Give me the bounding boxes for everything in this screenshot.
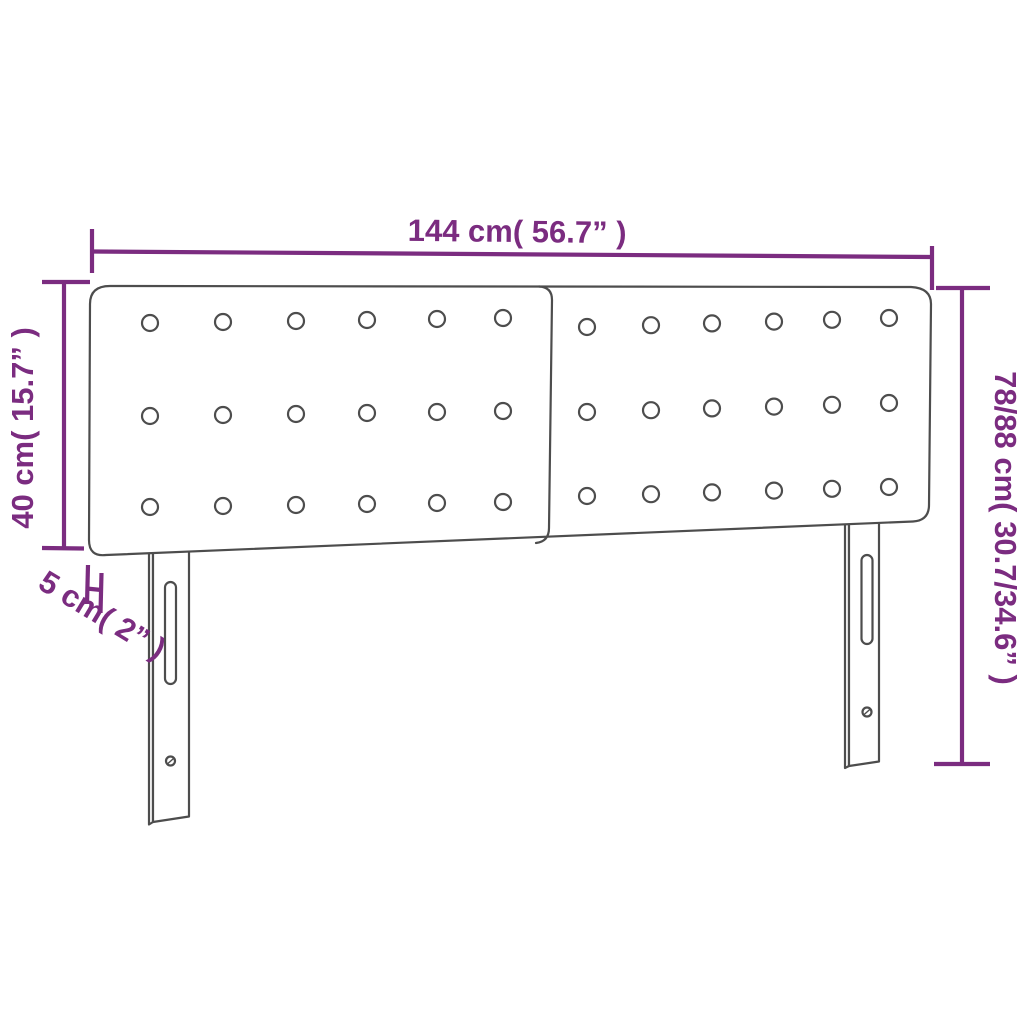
tufting-button [881,310,897,326]
tufting-button [429,311,445,327]
dimension-panel-height: 40 cm( 15.7” ) [5,282,90,549]
tufting-button [704,315,720,331]
tufting-button [215,314,231,330]
tufting-button [881,479,897,495]
tufting-button [579,319,595,335]
tufting-button [643,317,659,333]
tufting-button [643,402,659,418]
dimension-width-label: 144 cm( 56.7” ) [408,213,627,250]
tufting-button [495,403,511,419]
dimension-total-height: 78/88 cm( 30.7/34.6” ) [934,288,1023,764]
headboard-dimension-diagram: 144 cm( 56.7” ) 40 cm( 15.7” ) 78/88 cm(… [0,0,1024,1024]
tufting-button [215,498,231,514]
tufting-button [359,496,375,512]
tufting-button [824,312,840,328]
tufting-button [824,481,840,497]
tufting-button [429,495,445,511]
tufting-button [766,314,782,330]
dimension-panel-height-tick-bottom [42,548,84,549]
tufting-button [359,312,375,328]
leg-right-slot [862,555,873,644]
tufting-button [215,407,231,423]
leg-right [845,520,879,768]
tufting-button [881,395,897,411]
tufting-button [824,397,840,413]
tufting-button [579,404,595,420]
tufting-button [142,408,158,424]
tufting-button [359,405,375,421]
tufting-button [579,488,595,504]
dimension-width: 144 cm( 56.7” ) [92,213,932,290]
tufting-button [704,484,720,500]
tufting-button [142,499,158,515]
tufting-button [288,406,304,422]
dimension-width-line [92,252,932,258]
tufting-button [643,486,659,502]
dimension-panel-height-label: 40 cm( 15.7” ) [5,327,40,529]
tufting-button [429,404,445,420]
tufting-button [495,310,511,326]
diagram-stage: 144 cm( 56.7” ) 40 cm( 15.7” ) 78/88 cm(… [0,0,1024,1024]
tufting-button [766,399,782,415]
tufting-button [288,313,304,329]
tufting-button [704,400,720,416]
tufting-button [495,494,511,510]
tufting-button [142,315,158,331]
tufting-button [766,483,782,499]
tufting-button [288,497,304,513]
dimension-total-height-label: 78/88 cm( 30.7/34.6” ) [988,371,1023,685]
leg-left [149,544,189,825]
